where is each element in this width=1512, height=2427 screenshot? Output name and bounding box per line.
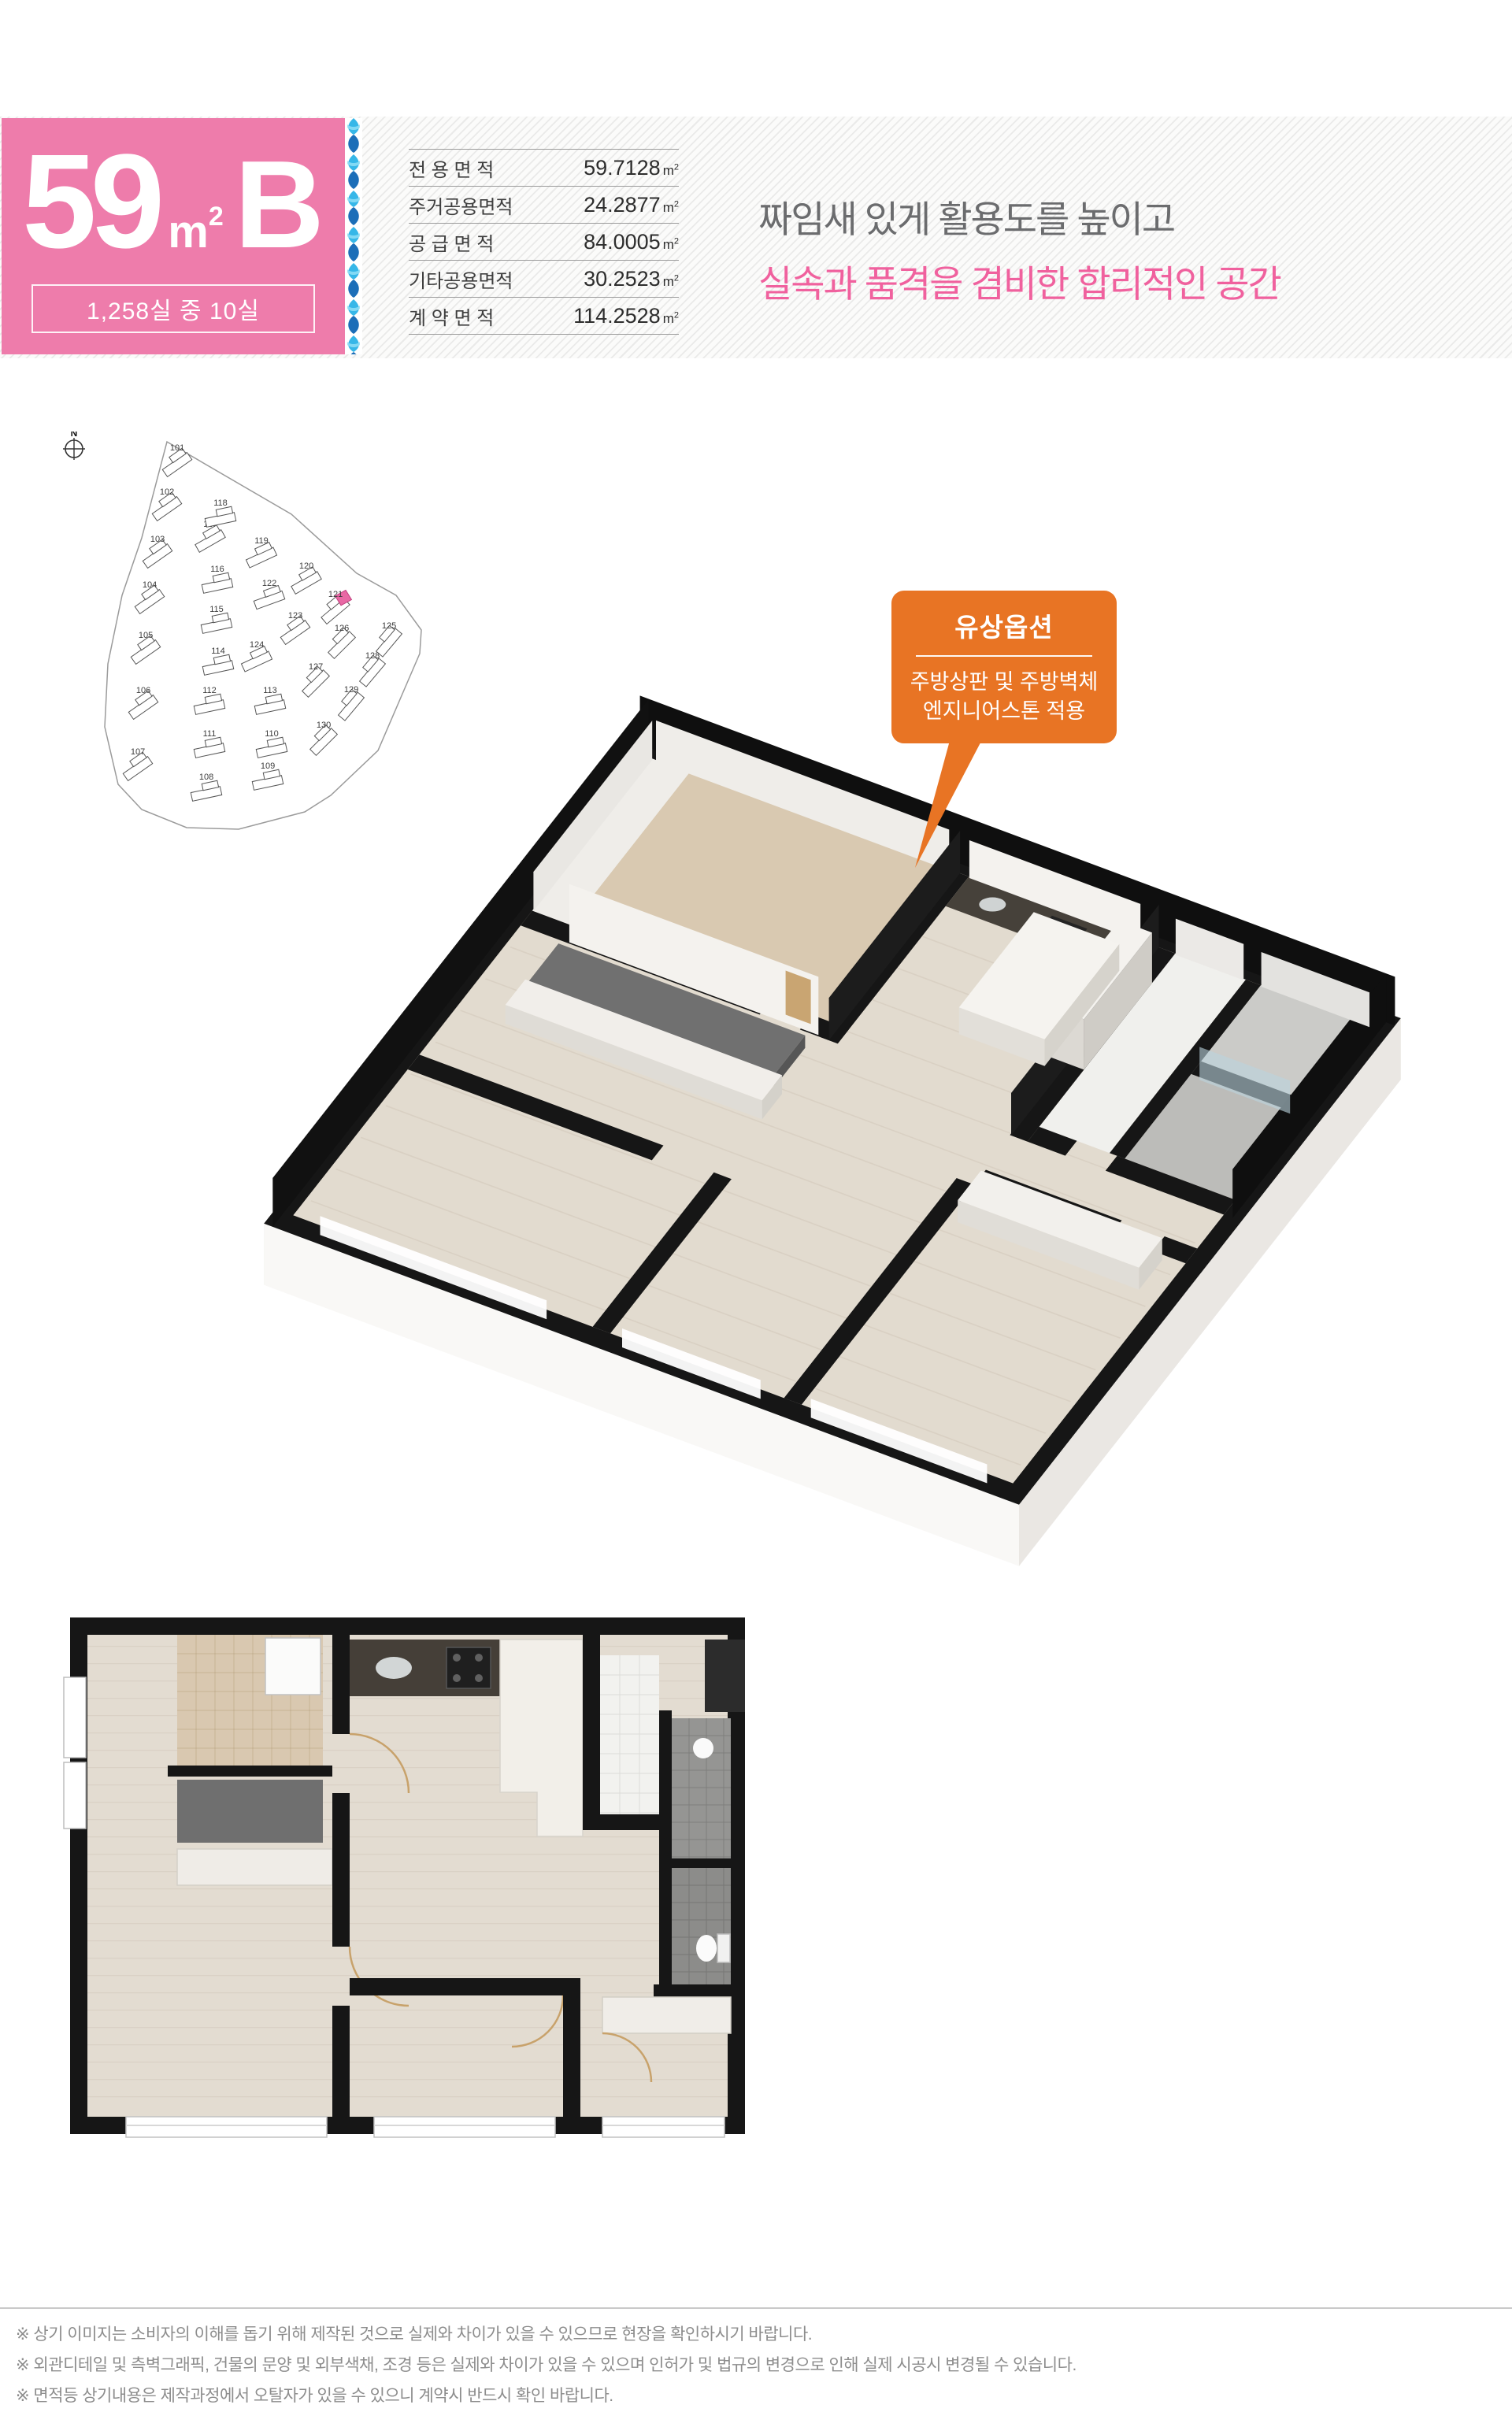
area-value: 59.7128m2 bbox=[584, 156, 679, 180]
site-building-label: 110 bbox=[265, 729, 279, 739]
site-building-label: 103 bbox=[150, 535, 165, 544]
svg-text:N: N bbox=[71, 432, 78, 439]
site-building-label: 126 bbox=[335, 624, 349, 633]
unit-variant: B bbox=[235, 143, 324, 267]
site-building-label: 115 bbox=[209, 605, 224, 614]
site-building-label: 112 bbox=[202, 686, 217, 695]
callout-body: 주방상판 및 주방벽체 엔지니어스톤 적용 bbox=[891, 668, 1117, 726]
unit-type-label: 59 m2 B bbox=[22, 135, 324, 269]
wave-decoration-strip bbox=[345, 118, 362, 354]
area-label: 공 급 면 적 bbox=[409, 228, 494, 256]
site-building-label: 113 bbox=[263, 686, 277, 695]
area-label: 기타공용면적 bbox=[409, 265, 513, 293]
site-building-label: 111 bbox=[203, 729, 217, 739]
site-building-label: 101 bbox=[170, 443, 184, 453]
callout-title: 유상옵션 bbox=[891, 606, 1117, 644]
callout-divider bbox=[916, 655, 1092, 657]
site-building-label: 104 bbox=[143, 580, 157, 590]
area-value: 30.2523m2 bbox=[584, 267, 679, 291]
site-building-label: 106 bbox=[136, 686, 150, 695]
site-building-label: 102 bbox=[160, 487, 174, 497]
site-building-label: 119 bbox=[254, 536, 269, 546]
unit-size-unit: m2 bbox=[168, 203, 224, 255]
site-building-label: 120 bbox=[299, 561, 313, 571]
footer-disclaimer: ※ 상기 이미지는 소비자의 이해를 돕기 위해 제작된 것으로 실제와 차이가… bbox=[0, 2307, 1512, 2414]
area-value: 84.0005m2 bbox=[584, 230, 679, 254]
site-building-label: 105 bbox=[139, 631, 153, 640]
site-building-label: 130 bbox=[317, 721, 331, 730]
unit-type-badge: 59 m2 B 1,258실 중 10실 bbox=[2, 118, 345, 354]
area-value: 24.2877m2 bbox=[584, 193, 679, 217]
site-building-label: 108 bbox=[199, 773, 213, 782]
paid-option-callout: 유상옵션 주방상판 및 주방벽체 엔지니어스톤 적용 bbox=[891, 591, 1117, 743]
site-building-label: 125 bbox=[382, 621, 396, 631]
site-building-label: 123 bbox=[288, 611, 302, 621]
brochure-page: 59 m2 B 1,258실 중 10실 전 용 면 적59.7128m2주거공… bbox=[0, 0, 1512, 2427]
site-building-label: 124 bbox=[250, 640, 264, 650]
disclaimer-line: ※ 외관디테일 및 측벽그래픽, 건물의 문양 및 외부색채, 조경 등은 실제… bbox=[16, 2352, 1512, 2376]
area-row: 공 급 면 적84.0005m2 bbox=[409, 224, 679, 261]
site-building-label: 109 bbox=[261, 761, 275, 771]
site-building-label: 114 bbox=[211, 647, 225, 656]
site-building-label: 118 bbox=[213, 498, 228, 508]
area-label: 계 약 면 적 bbox=[409, 302, 494, 330]
site-plan: N 10110210310410510610710810911011111211… bbox=[55, 432, 433, 841]
site-building-label: 107 bbox=[131, 747, 145, 757]
unit-size: 59 bbox=[22, 135, 158, 269]
area-row: 전 용 면 적59.7128m2 bbox=[409, 150, 679, 187]
floorplan-2d bbox=[59, 1608, 756, 2146]
disclaimer-line: ※ 면적등 상기내용은 제작과정에서 오탈자가 있을 수 있으니 계약시 반드시… bbox=[16, 2383, 1512, 2407]
area-label: 전 용 면 적 bbox=[409, 154, 494, 182]
site-building-label: 122 bbox=[262, 579, 276, 588]
headline-line-2: 실속과 품격을 겸비한 합리적인 공간 bbox=[758, 254, 1280, 308]
area-table: 전 용 면 적59.7128m2주거공용면적24.2877m2공 급 면 적84… bbox=[409, 149, 679, 335]
callout-pointer bbox=[898, 728, 1008, 877]
site-building-label: 121 bbox=[328, 590, 343, 599]
area-value: 114.2528m2 bbox=[573, 304, 679, 328]
compass-icon: N bbox=[63, 432, 85, 460]
area-row: 주거공용면적24.2877m2 bbox=[409, 187, 679, 224]
area-row: 기타공용면적30.2523m2 bbox=[409, 261, 679, 298]
site-building-label: 129 bbox=[344, 685, 358, 695]
headline: 짜임새 있게 활용도를 높이고 실속과 품격을 겸비한 합리적인 공간 bbox=[758, 189, 1280, 308]
site-building-label: 127 bbox=[309, 662, 323, 672]
headline-line-1: 짜임새 있게 활용도를 높이고 bbox=[758, 189, 1280, 243]
site-building-label: 116 bbox=[210, 565, 224, 574]
site-building-label: 128 bbox=[365, 651, 380, 661]
availability-box: 1,258실 중 10실 bbox=[31, 284, 315, 333]
area-row: 계 약 면 적114.2528m2 bbox=[409, 298, 679, 335]
disclaimer-line: ※ 상기 이미지는 소비자의 이해를 돕기 위해 제작된 것으로 실제와 차이가… bbox=[16, 2321, 1512, 2345]
area-label: 주거공용면적 bbox=[409, 191, 513, 219]
